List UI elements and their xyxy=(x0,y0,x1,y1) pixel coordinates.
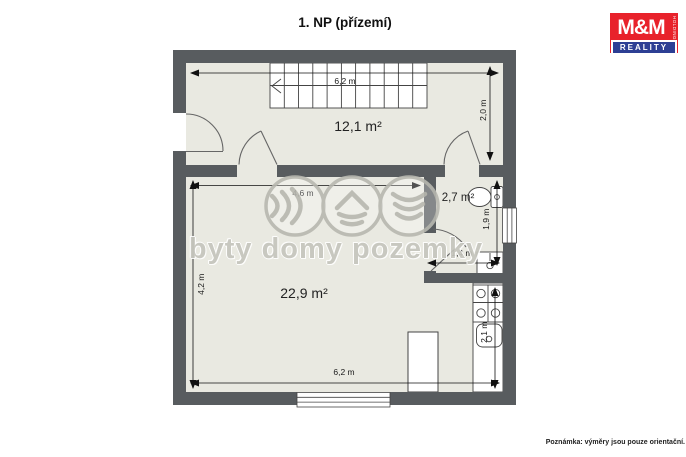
dim-living-depth: 4,2 m xyxy=(197,264,206,304)
logo-side-text: HOLDING xyxy=(672,16,677,40)
dim-kitchen-depth: 2,1 m xyxy=(480,312,489,352)
logo-name: M&M xyxy=(610,15,672,40)
dim-bottom-width: 6,2 m xyxy=(314,368,374,377)
room-area-wc: 2,7 m² xyxy=(428,193,488,205)
window-bottom xyxy=(297,393,390,408)
floor-plan-drawing xyxy=(0,0,686,457)
floor-plan-page: 1. NP (přízemí) 12,1 m² 22,9 m² 2,7 m² 6… xyxy=(0,0,686,457)
dim-hall-depth: 2,0 m xyxy=(479,90,488,130)
logo-reality-banner: REALITY xyxy=(611,40,677,55)
floor-area xyxy=(186,63,503,392)
dim-hall-width: 6,2 m xyxy=(315,77,375,86)
disclaimer-note: Poznámka: výměry jsou pouze orientační. xyxy=(460,439,685,446)
dim-living-width: 4,6 m xyxy=(273,189,333,198)
dim-wc-depth: 1,9 m xyxy=(482,199,491,239)
agency-logo: M&M HOLDING REALITY xyxy=(610,13,678,55)
window-right xyxy=(503,208,517,243)
room-area-hall: 12,1 m² xyxy=(308,119,408,133)
dim-wc-width: 1,4 m xyxy=(432,249,492,258)
room-area-living: 22,9 m² xyxy=(254,286,354,300)
plan-title: 1. NP (přízemí) xyxy=(160,16,530,30)
